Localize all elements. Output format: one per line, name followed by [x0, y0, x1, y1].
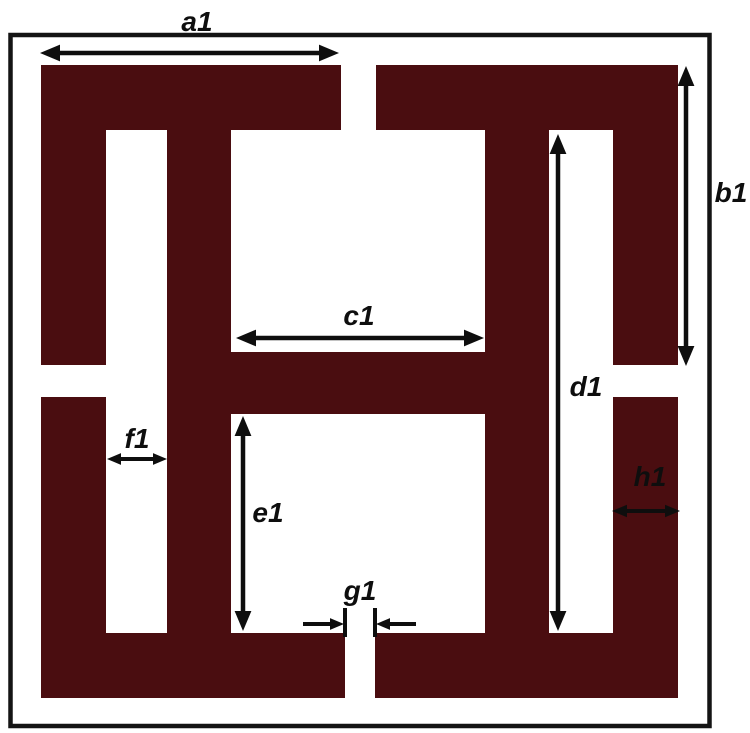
a1-label: a1: [181, 6, 212, 37]
c1-label: c1: [343, 300, 374, 331]
d1-label: d1: [570, 371, 603, 402]
right-bar-upper: [613, 65, 678, 365]
h1-label: h1: [634, 461, 667, 492]
g1-label: g1: [343, 575, 377, 606]
f1-label: f1: [125, 423, 150, 454]
e1-label: e1: [252, 497, 283, 528]
figure-canvas: a1b1c1d1e1f1g1h1: [0, 0, 750, 733]
b1-label: b1: [715, 177, 748, 208]
left-bar-upper: [41, 65, 106, 365]
center-crossbar: [167, 352, 549, 414]
unit-cell-dimension-diagram: a1b1c1d1e1f1g1h1: [0, 0, 750, 733]
